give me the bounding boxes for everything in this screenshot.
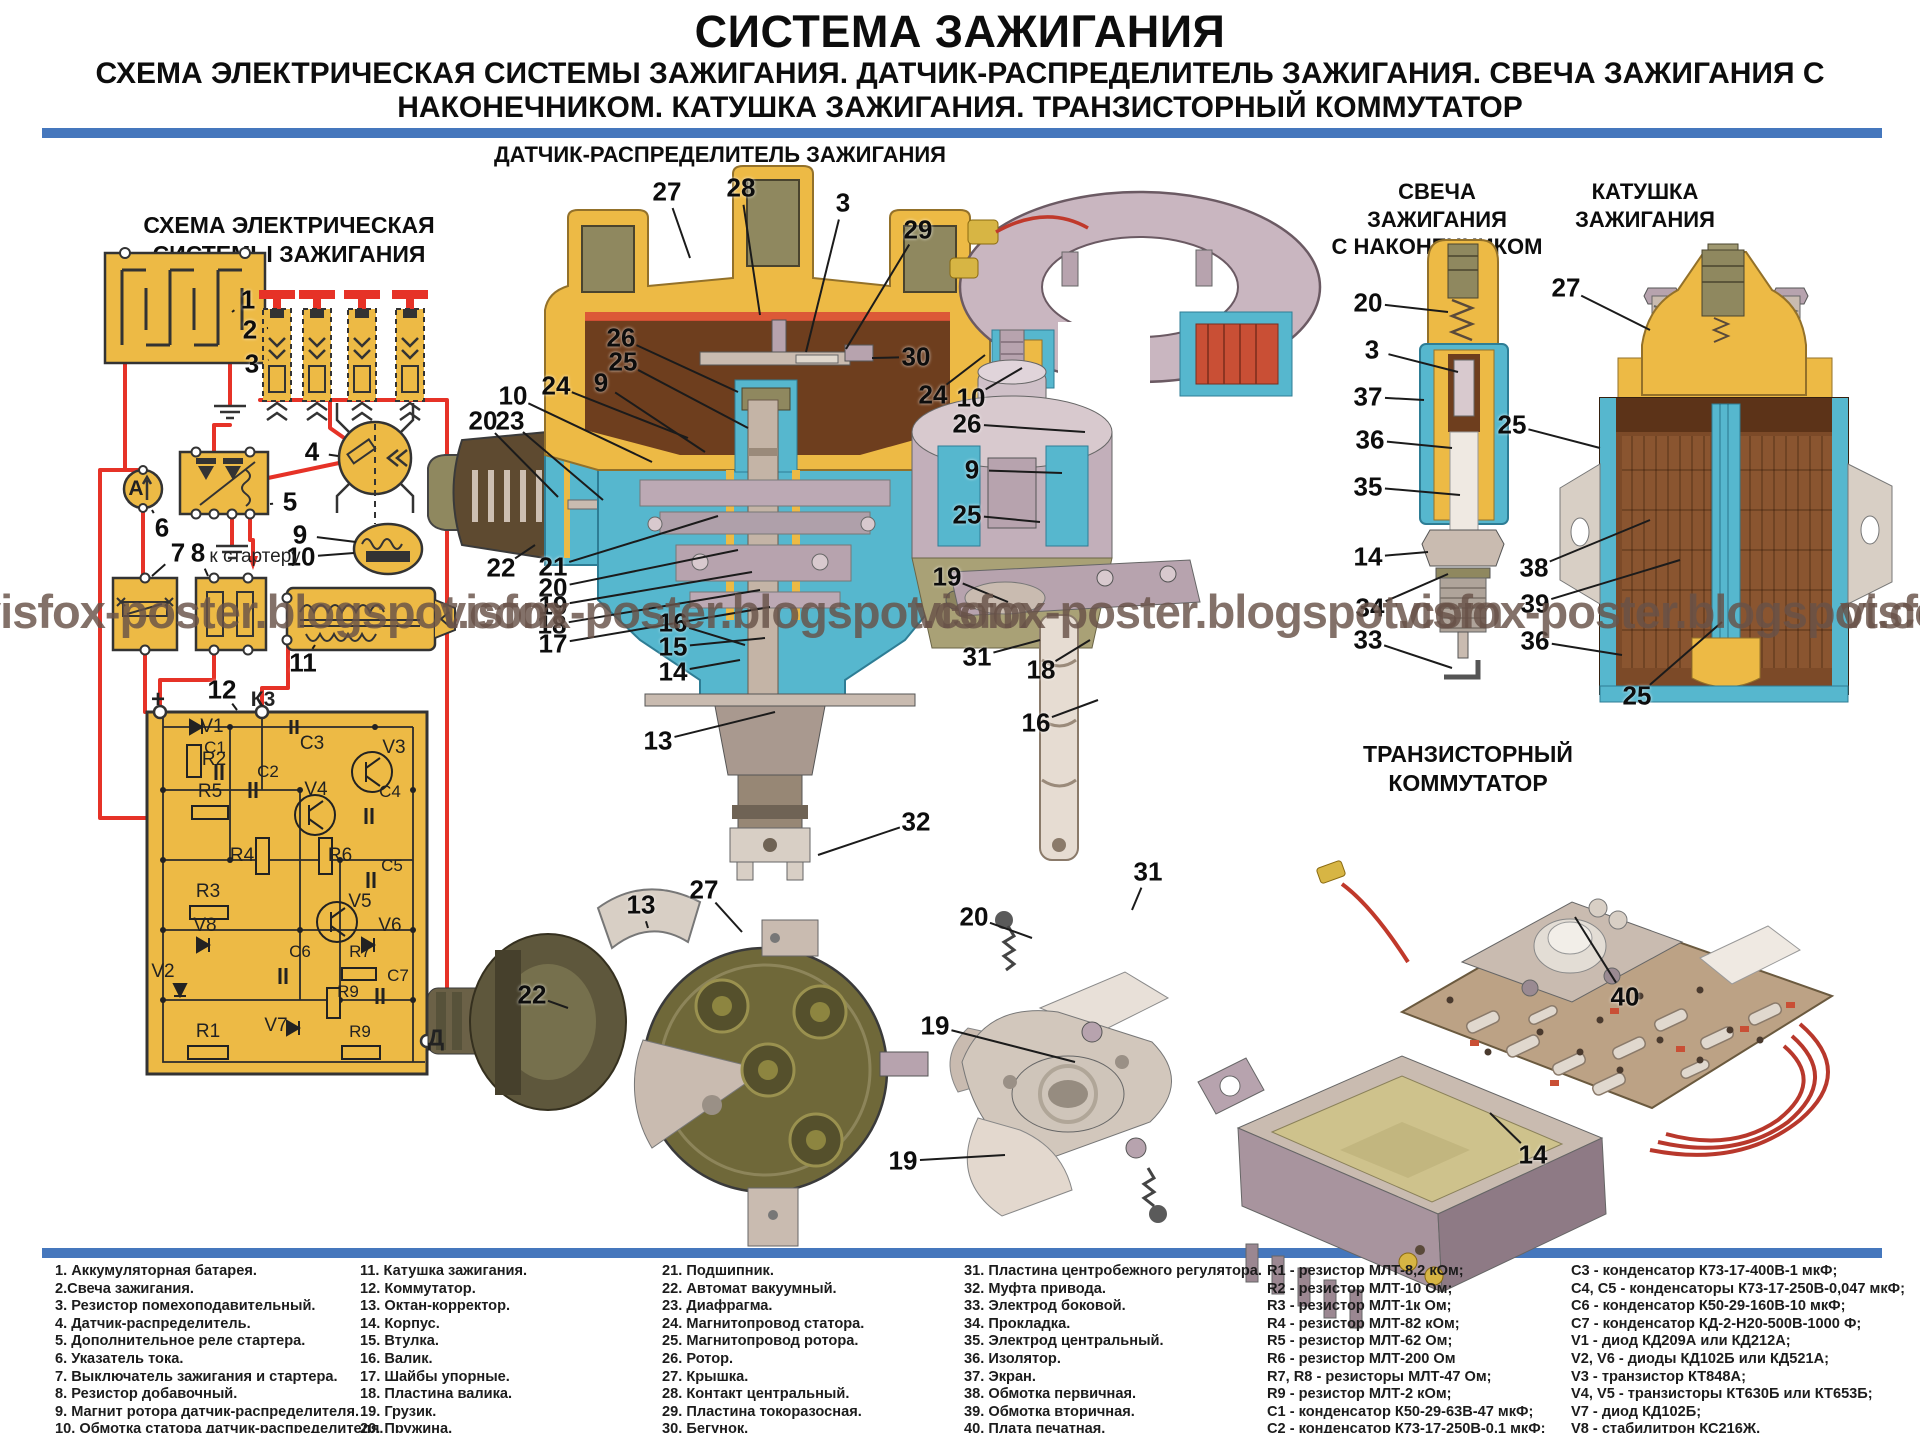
callout-23: 23 xyxy=(496,406,525,437)
callout-3: 3 xyxy=(1365,335,1379,366)
callout-27: 27 xyxy=(1552,273,1581,304)
callout-31: 31 xyxy=(963,642,992,673)
schematic-label-C5: C5 xyxy=(381,856,403,876)
callout-18: 18 xyxy=(1027,655,1056,686)
callout-9: 9 xyxy=(965,455,979,486)
callout-14: 14 xyxy=(1354,542,1383,573)
schematic-label-C1: C1 xyxy=(204,738,226,758)
callout-19: 19 xyxy=(921,1011,950,1042)
schematic-label-C7: C7 xyxy=(387,966,409,986)
schematic-label-V4: V4 xyxy=(304,779,327,801)
schematic-label-R4: R4 xyxy=(230,845,254,867)
callout-2: 2 xyxy=(243,315,257,346)
schematic-label-C4: C4 xyxy=(379,782,401,802)
callout-26: 26 xyxy=(953,409,982,440)
callout-14: 14 xyxy=(1519,1140,1548,1171)
schematic-label-V2: V2 xyxy=(151,961,174,983)
schematic-label-А: А xyxy=(128,477,143,501)
callout-7: 7 xyxy=(171,538,185,569)
callout-8: 8 xyxy=(191,538,205,569)
schematic-label-+: + xyxy=(151,686,165,714)
schematic-label-V6: V6 xyxy=(378,915,401,937)
watermark-text: visfox-poster.blogspot.com xyxy=(1840,588,1920,635)
callout-20: 20 xyxy=(960,902,989,933)
schematic-label-К3: К3 xyxy=(251,688,276,712)
callout-35: 35 xyxy=(1354,472,1383,503)
callout-30: 30 xyxy=(902,342,931,373)
schematic-label-R9: R9 xyxy=(349,1022,371,1042)
callout-1: 1 xyxy=(241,285,255,316)
callout-27: 27 xyxy=(653,177,682,208)
callout-31: 31 xyxy=(1134,857,1163,888)
callout-13: 13 xyxy=(627,890,656,921)
callout-25: 25 xyxy=(1623,681,1652,712)
callout-37: 37 xyxy=(1354,382,1383,413)
schematic-label-C2: C2 xyxy=(257,762,279,782)
poster: СИСТЕМА ЗАЖИГАНИЯ СХЕМА ЭЛЕКТРИЧЕСКАЯ СИ… xyxy=(0,0,1920,1433)
callout-32: 32 xyxy=(902,807,931,838)
callout-16: 16 xyxy=(1022,708,1051,739)
callout-24: 24 xyxy=(542,371,571,402)
callout-22: 22 xyxy=(487,553,516,584)
leader-line-layer xyxy=(0,0,1920,1433)
schematic-label-V7: V7 xyxy=(264,1015,287,1037)
callout-24: 24 xyxy=(919,380,948,411)
callout-20: 20 xyxy=(1354,288,1383,319)
schematic-label-V5: V5 xyxy=(348,891,371,913)
schematic-label-R5: R5 xyxy=(198,781,222,803)
callout-20: 20 xyxy=(469,406,498,437)
callout-12: 12 xyxy=(208,675,237,706)
callout-36: 36 xyxy=(1356,425,1385,456)
callout-3: 3 xyxy=(836,188,850,219)
callout-40: 40 xyxy=(1611,982,1640,1013)
callout-3: 3 xyxy=(245,349,259,380)
schematic-label-R7: R7 xyxy=(349,942,371,962)
schematic-label-R3: R3 xyxy=(196,881,220,903)
callout-13: 13 xyxy=(644,726,673,757)
callout-9: 9 xyxy=(594,368,608,399)
callout-28: 28 xyxy=(727,173,756,204)
callout-11: 11 xyxy=(289,648,317,679)
callout-27: 27 xyxy=(690,875,719,906)
schematic-label-R9: R9 xyxy=(337,982,359,1002)
callout-25: 25 xyxy=(609,347,638,378)
schematic-label-C6: C6 xyxy=(289,942,311,962)
schematic-label-V3: V3 xyxy=(382,737,405,759)
callout-5: 5 xyxy=(283,487,297,518)
callout-4: 4 xyxy=(305,437,319,468)
schematic-label-R1: R1 xyxy=(196,1021,220,1043)
callout-25: 25 xyxy=(1498,410,1527,441)
callout-29: 29 xyxy=(904,215,933,246)
callout-22: 22 xyxy=(518,980,547,1011)
callout-6: 6 xyxy=(155,513,169,544)
callout-25: 25 xyxy=(953,500,982,531)
schematic-label-Д: Д xyxy=(428,1025,444,1052)
callout-38: 38 xyxy=(1520,553,1549,584)
schematic-label-R6: R6 xyxy=(328,845,352,867)
callout-19: 19 xyxy=(889,1146,918,1177)
schematic-label-к стартеру: к стартеру xyxy=(209,546,300,568)
schematic-label-V8: V8 xyxy=(193,915,216,937)
callout-14: 14 xyxy=(659,657,688,688)
schematic-label-V1: V1 xyxy=(200,716,223,738)
schematic-label-C3: C3 xyxy=(300,733,324,755)
